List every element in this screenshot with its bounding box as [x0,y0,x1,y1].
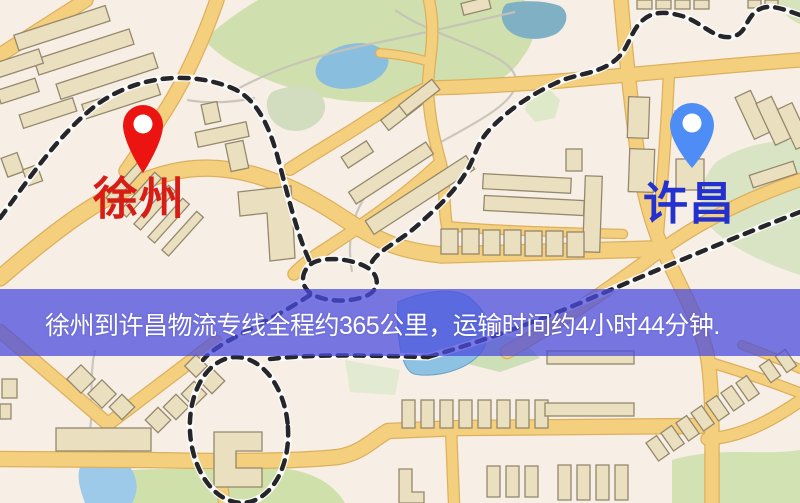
origin-pin-icon [118,100,168,181]
destination-city-label: 许昌 [643,181,735,226]
logistics-route-map: 徐州到许昌物流专线全程约365公里，运输时间约4小时44分钟. 徐州 许昌 [0,0,800,503]
origin-city-label: 徐州 [93,176,185,221]
destination-pin-icon [666,99,718,176]
route-info-text: 徐州到许昌物流专线全程约365公里，运输时间约4小时44分钟. [45,306,720,342]
map-canvas [0,0,800,503]
route-info-banner: 徐州到许昌物流专线全程约365公里，运输时间约4小时44分钟. [0,289,800,356]
